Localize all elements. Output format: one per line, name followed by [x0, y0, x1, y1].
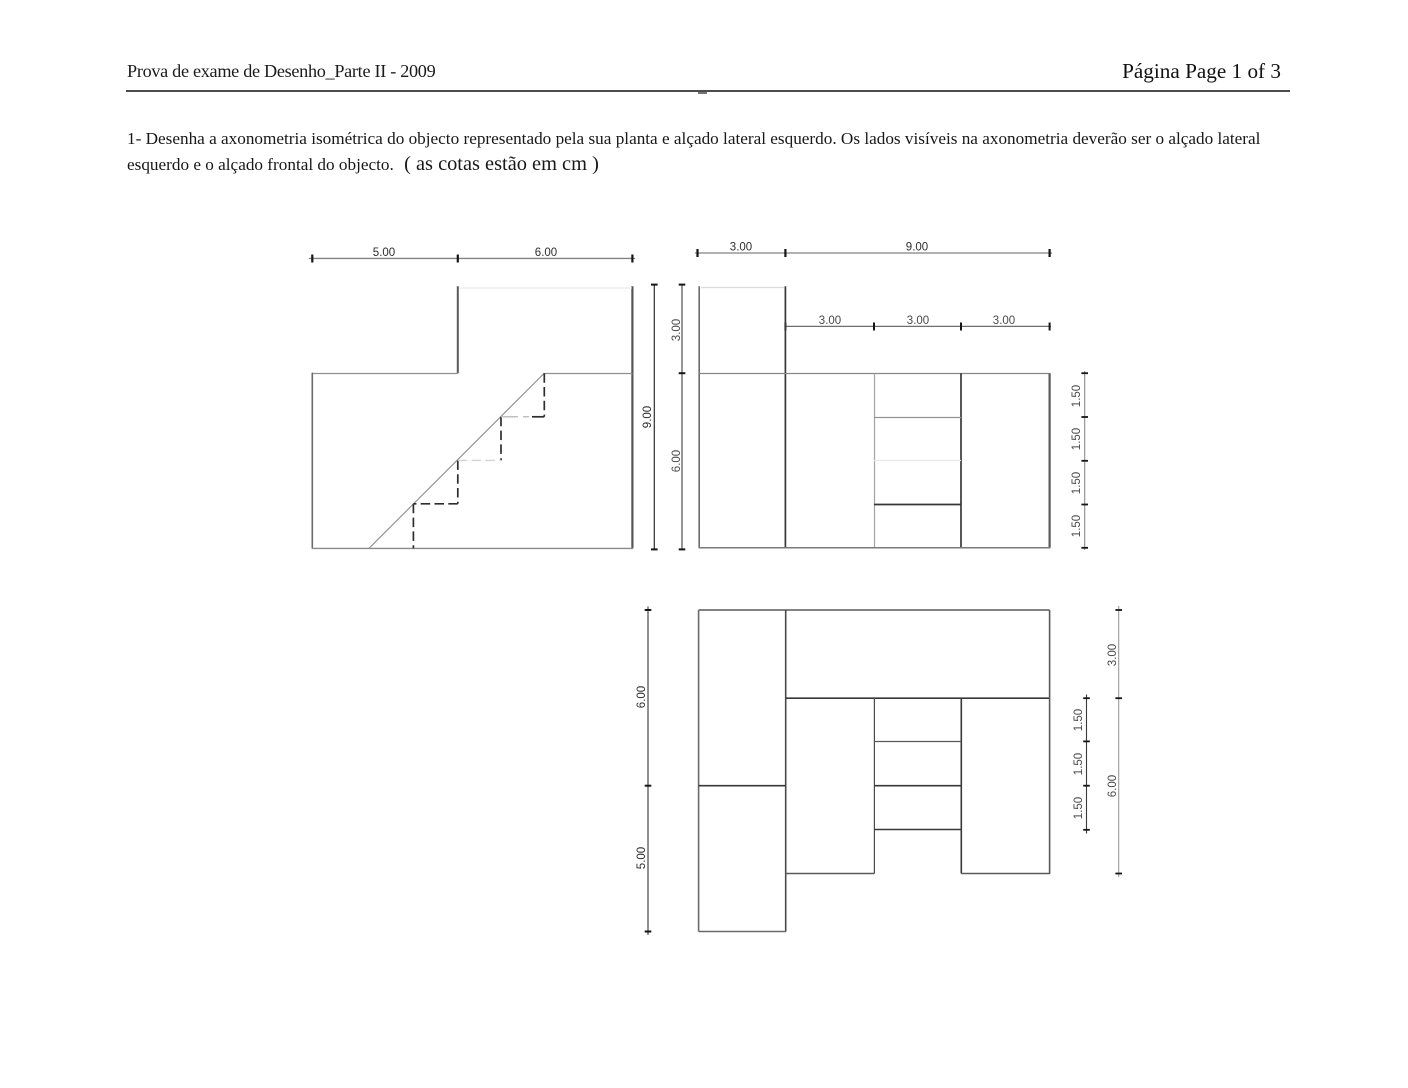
svg-text:5.00: 5.00 [636, 847, 648, 869]
svg-text:6.00: 6.00 [636, 686, 648, 708]
svg-text:9.00: 9.00 [642, 406, 654, 428]
svg-text:3.00: 3.00 [907, 315, 929, 327]
svg-text:6.00: 6.00 [1107, 775, 1119, 797]
svg-text:1.50: 1.50 [1071, 472, 1083, 494]
svg-text:1.50: 1.50 [1073, 753, 1085, 775]
svg-text:5.00: 5.00 [373, 247, 395, 259]
svg-text:3.00: 3.00 [993, 315, 1015, 327]
svg-text:3.00: 3.00 [671, 319, 683, 341]
svg-text:1.50: 1.50 [1071, 428, 1083, 450]
svg-text:1.50: 1.50 [1071, 515, 1083, 537]
svg-text:6.00: 6.00 [671, 450, 683, 472]
svg-text:1.50: 1.50 [1071, 385, 1083, 407]
svg-text:1.50: 1.50 [1073, 797, 1085, 819]
svg-text:3.00: 3.00 [819, 315, 841, 327]
svg-text:9.00: 9.00 [906, 242, 928, 254]
svg-text:3.00: 3.00 [730, 242, 752, 254]
svg-text:1.50: 1.50 [1073, 709, 1085, 731]
svg-text:6.00: 6.00 [535, 247, 557, 259]
svg-text:3.00: 3.00 [1107, 644, 1119, 666]
